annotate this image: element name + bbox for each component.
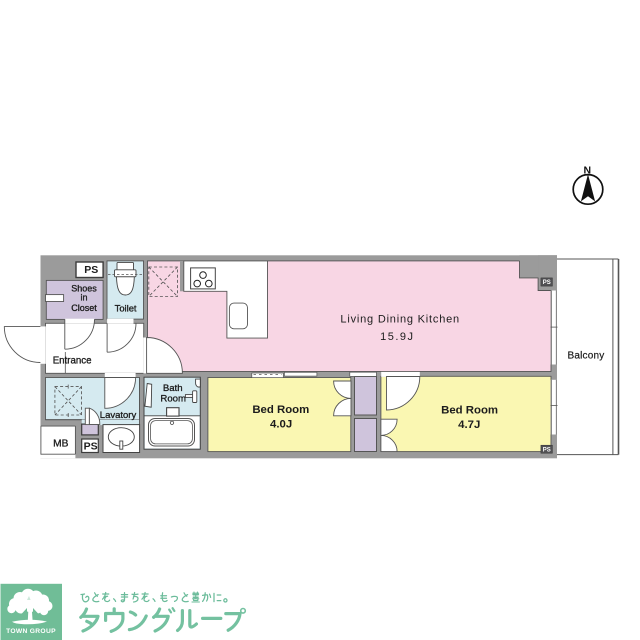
svg-text:Entrance: Entrance bbox=[53, 355, 92, 366]
svg-text:Bed Room: Bed Room bbox=[252, 404, 309, 416]
svg-text:N: N bbox=[584, 165, 592, 177]
svg-text:4.0J: 4.0J bbox=[270, 419, 292, 431]
svg-text:Lavatory: Lavatory bbox=[100, 410, 137, 421]
svg-text:PS: PS bbox=[543, 447, 551, 453]
svg-text:PS: PS bbox=[84, 441, 98, 453]
svg-text:Closet: Closet bbox=[71, 303, 97, 313]
svg-text:Bed Room: Bed Room bbox=[441, 404, 498, 416]
svg-text:15.9J: 15.9J bbox=[380, 331, 414, 343]
svg-text:Room: Room bbox=[160, 394, 186, 405]
svg-text:PS: PS bbox=[84, 264, 98, 276]
svg-text:TOWN GROUP: TOWN GROUP bbox=[6, 628, 56, 635]
svg-text:PS: PS bbox=[543, 280, 551, 286]
svg-text:MB: MB bbox=[53, 438, 68, 449]
svg-text:in: in bbox=[80, 293, 87, 303]
svg-text:Balcony: Balcony bbox=[568, 351, 605, 362]
svg-text:Living Dining Kitchen: Living Dining Kitchen bbox=[340, 313, 460, 325]
svg-text:Bath: Bath bbox=[163, 383, 183, 394]
svg-text:Toilet: Toilet bbox=[115, 303, 137, 314]
svg-text:4.7J: 4.7J bbox=[458, 419, 480, 431]
